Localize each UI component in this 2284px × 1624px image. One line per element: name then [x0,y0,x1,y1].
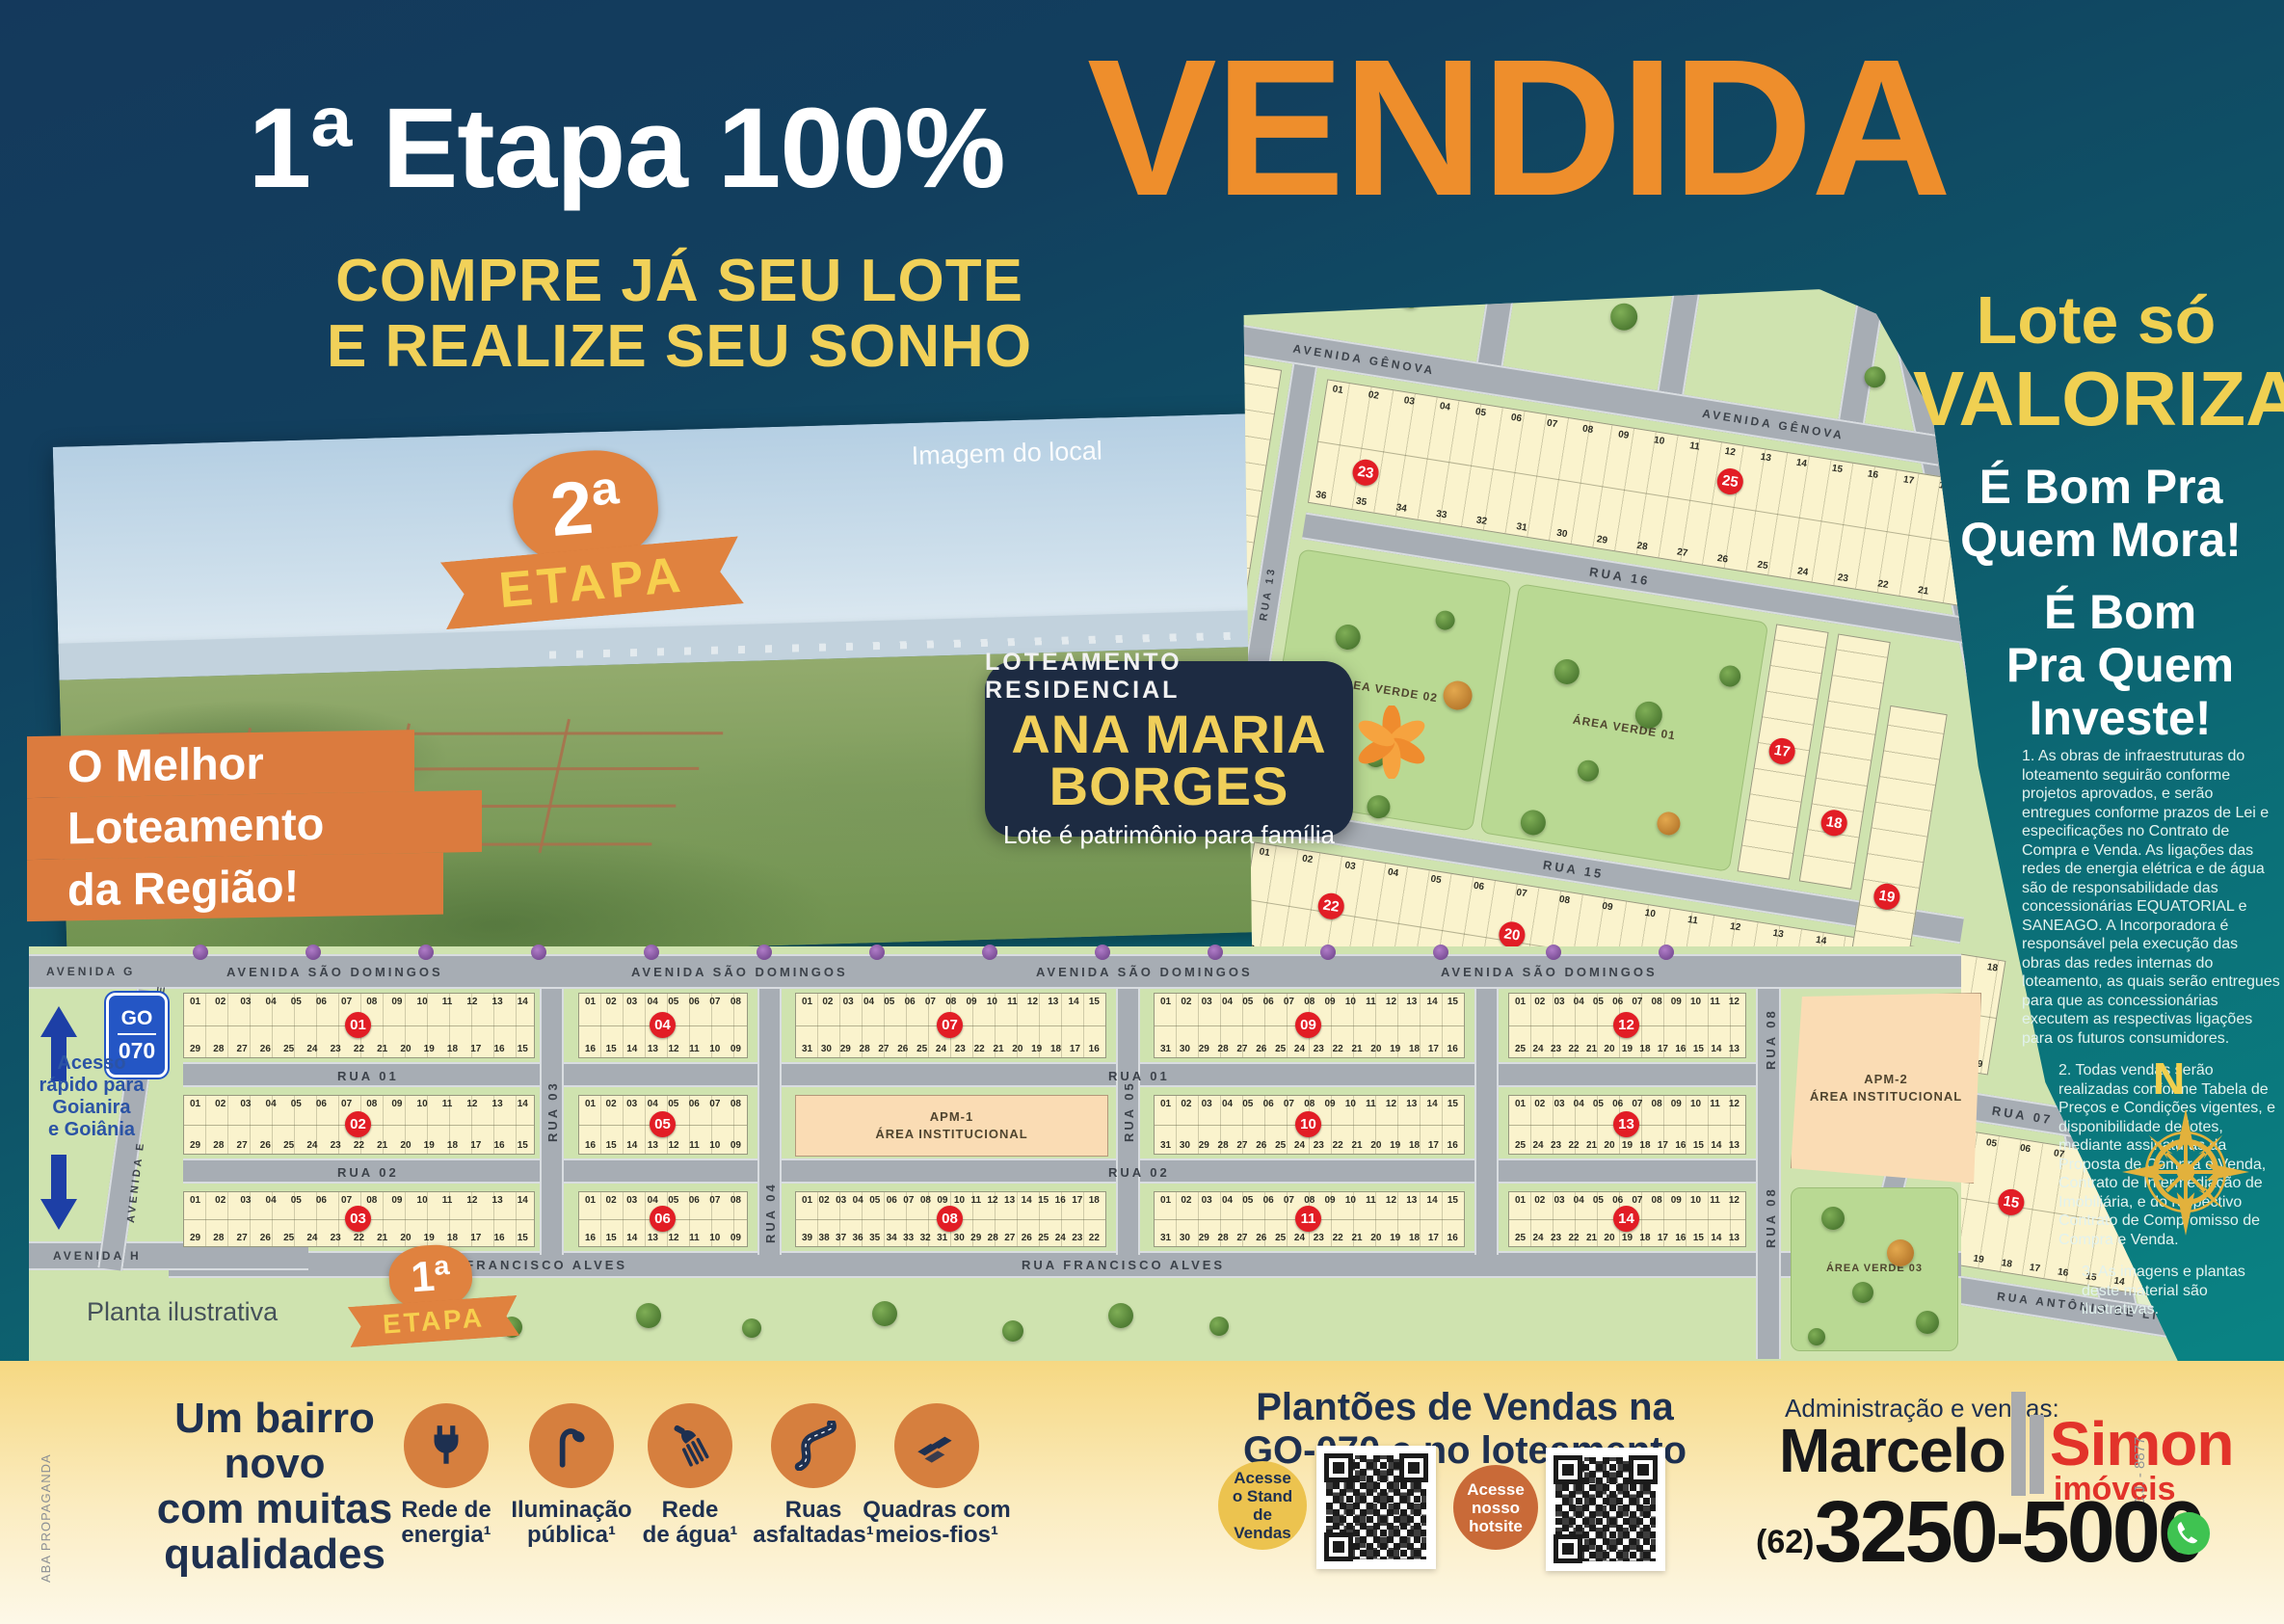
apm2-label: APM-2 ÁREA INSTITUCIONAL [1810,1071,1962,1105]
quadra-marker: 06 [650,1206,676,1232]
access-note: Acesso rápido para Goianira e Goiânia [29,1052,154,1141]
quadra-marker: 07 [937,1012,963,1038]
feature-iluminacao: Iluminação pública¹ [509,1403,634,1548]
lot-numbers-top: 0102030405060708 [585,997,741,1007]
lot-numbers-top: 010203040506070809101112 [1515,1195,1740,1206]
phone-number: (62) 3250-5000 [1756,1492,2203,1573]
qr-code-stand [1316,1446,1436,1569]
lot-numbers-bottom: 31302928272625242322212019181716 [802,1044,1100,1054]
feature-caption: Quadras com meios-fios¹ [863,1498,1010,1548]
headline-cta: COMPRE JÁ SEU LOTE E REALIZE SEU SONHO [275,249,1084,380]
ribbon-line: O Melhor [27,730,414,798]
ribbon-line: Loteamento [27,790,482,860]
tree-icon [1108,1303,1133,1328]
arrow-down-icon [40,1155,77,1230]
street-lamp-icon [529,1403,614,1488]
apm1-area: APM-1 ÁREA INSTITUCIONAL [795,1095,1108,1157]
lot-numbers-top: 0102030405060708 [585,1195,741,1206]
tree-icon [1916,1311,1939,1334]
avenue-tree-icon [1095,945,1110,960]
lot-numbers-bottom: 25242322212019181716151413 [1515,1140,1740,1151]
phone-main: 3250-5000 [1814,1492,2202,1573]
value-line2: VALORIZA [1913,355,2279,443]
legal-notes: 1. As obras de infraestruturas do loteam… [2022,747,2280,1333]
quadra-marker: 08 [937,1206,963,1232]
tree-icon [1808,1328,1825,1345]
lot-numbers-bottom: 31302928272625242322212019181716 [1160,1233,1458,1243]
street-label-sao_domingos: AVENIDA SÃO DOMINGOS [1036,965,1253,979]
avenue-tree-icon [1433,945,1448,960]
feature-energia: Rede de energia¹ [387,1403,505,1548]
lot-numbers-top: 010203040506070809101112131415161718 [802,1195,1100,1206]
road-sign-state: GO [118,1007,157,1035]
lot-numbers-bottom: 25242322212019181716151413 [1515,1233,1740,1243]
tree-icon [872,1301,897,1326]
avenue-tree-icon [531,945,546,960]
lot-numbers-top: 0102030405060708 [585,1099,741,1109]
avenue-tree-icon [193,945,208,960]
street-label-avenida_h: AVENIDA H [53,1249,142,1263]
lot-numbers-bottom: 31302928272625242322212019181716 [1160,1140,1458,1151]
plug-icon [404,1403,489,1488]
street-label-rua03: RUA 03 [545,1080,560,1142]
lot-numbers-top: 010203040506070809101112 [1515,1099,1740,1109]
feature-caption: Rede de água¹ [643,1498,738,1548]
lot-numbers-top: 010203040506070809101112131415 [1160,1099,1458,1109]
lot-numbers-top: 0102030405060708091011121314 [190,997,528,1007]
benefit-investe: É Bom Pra Quem Investe! [1961,586,2279,745]
apm1-label: APM-1 ÁREA INSTITUCIONAL [875,1108,1027,1143]
avenue-tree-icon [869,945,885,960]
street-label-rua05: RUA 05 [1122,1080,1136,1142]
qr-code-hotsite [1546,1448,1665,1571]
legal-note-3: 3. As imagens e plantas deste material s… [2082,1263,2280,1319]
quadra-marker: 05 [650,1111,676,1137]
curb-blocks-icon [894,1403,979,1488]
feature-quadras: Quadras com meios-fios¹ [856,1403,1018,1548]
shower-icon [648,1403,732,1488]
avenue-tree-icon [305,945,321,960]
feature-agua: Rede de água¹ [631,1403,749,1548]
street-road [183,1158,1768,1184]
tree-icon [1209,1317,1229,1336]
quadra-marker: 09 [1295,1012,1321,1038]
feature-caption: Iluminação pública¹ [511,1498,631,1548]
street-label-rua08: RUA 08 [1764,1008,1778,1070]
apm2-area: APM-2 ÁREA INSTITUCIONAL [1791,993,1981,1184]
headline-sold: VENDIDA [1087,15,2003,240]
qr-stand-label: Acesse o Stand de Vendas [1218,1461,1307,1550]
poster: Imagem do local AVENIDA GÊNOVAAVENIDA GÊ… [0,0,2284,1624]
benefit-mora: É Bom Pra Quem Mora! [1927,461,2274,567]
lot-numbers-bottom: 292827262524232221201918171615 [190,1044,528,1054]
lot-numbers-top: 010203040506070809101112131415 [1160,1195,1458,1206]
headline-stage: 1ª Etapa 100% [145,83,1108,214]
agency-credit: ABA PROPAGANDA [39,1428,53,1583]
tree-icon [1002,1320,1023,1342]
footer-band: ABA PROPAGANDA Um bairro novo com muitas… [0,1361,2284,1624]
lot-numbers-bottom: 25242322212019181716151413 [1515,1044,1740,1054]
avenue-tree-icon [418,945,434,960]
tree-icon [1887,1239,1914,1266]
best-subdivision-ribbon: O Melhor Loteamento da Região! [27,729,482,921]
avenue-tree-icon [1546,945,1561,960]
street-label-sao_domingos: AVENIDA SÃO DOMINGOS [631,965,848,979]
street-label-rua02: RUA 02 [1108,1165,1170,1180]
street-road [1474,989,1499,1255]
quadra-marker: 02 [345,1111,371,1137]
quadra-marker: 01 [345,1012,371,1038]
tree-icon [1852,1282,1873,1303]
compass-north-label: N [2153,1052,2185,1105]
quadra-marker: 11 [1295,1206,1321,1232]
lot-numbers-bottom: 1615141312111009 [585,1044,741,1054]
plan-disclaimer: Planta ilustrativa [87,1297,278,1327]
lot-numbers-top: 0102030405060708091011121314 [190,1195,528,1206]
road-icon [771,1403,856,1488]
lot-numbers-bottom: 1615141312111009 [585,1233,741,1243]
whatsapp-icon [2166,1511,2211,1556]
qr-hotsite-label: Acesse nosso hotsite [1453,1465,1538,1550]
street-label-rua08: RUA 08 [1764,1186,1778,1248]
stage2-badge: 2ª ETAPA [432,439,744,629]
lot-numbers-bottom: 31302928272625242322212019181716 [1160,1044,1458,1054]
tree-icon [1821,1207,1845,1230]
street-label-rua04: RUA 04 [763,1182,778,1243]
avenue-tree-icon [1320,945,1336,960]
street-label-rua01: RUA 01 [337,1069,399,1083]
tree-icon [636,1303,661,1328]
project-name: ANA MARIA BORGES [1011,708,1326,812]
street-label-rua01: RUA 01 [1108,1069,1170,1083]
feature-caption: Rede de energia¹ [401,1498,491,1548]
tree-icon [742,1318,761,1338]
flower-icon [1355,706,1428,779]
lot-numbers-top: 010203040506070809101112131415 [1160,997,1458,1007]
avenue-tree-icon [982,945,997,960]
verde3-label: ÁREA VERDE 03 [1826,1262,1923,1276]
stage1-badge: 1ª ETAPA [344,1239,520,1347]
street-label-sao_domingos: AVENIDA SÃO DOMINGOS [226,965,443,979]
project-badge: LOTEAMENTO RESIDENCIAL ANA MARIA BORGES … [985,661,1353,837]
phone-ddd: (62) [1756,1524,1814,1561]
quadra-marker: 03 [345,1206,371,1232]
project-tagline: Lote é patrimônio para família [1003,820,1335,850]
street-label-rua02: RUA 02 [337,1165,399,1180]
ribbon-line: da Região! [27,853,443,922]
project-kicker: LOTEAMENTO RESIDENCIAL [985,649,1353,705]
brand-first: Marcelo [1779,1415,2005,1486]
quadra-marker: 10 [1295,1111,1321,1137]
value-line1: Lote só [1913,281,2279,359]
quadra-marker: 13 [1613,1111,1639,1137]
avenue-tree-icon [644,945,659,960]
street-label-francisco: RUA FRANCISCO ALVES [1022,1258,1225,1272]
compass-rose-icon [2122,1108,2249,1236]
lot-numbers-bottom: 292827262524232221201918171615 [190,1140,528,1151]
lot-numbers-bottom: 393837363534333231302928272625242322 [802,1233,1100,1243]
avenue-tree-icon [1208,945,1223,960]
street-label-avenida_g: AVENIDA G [46,965,135,978]
avenue-tree-icon [1659,945,1674,960]
quadra-marker: 14 [1613,1206,1639,1232]
lot-numbers-top: 0102030405060708091011121314 [190,1099,528,1109]
lot-numbers-bottom: 1615141312111009 [585,1140,741,1151]
quadra-marker: 12 [1613,1012,1639,1038]
street-road [183,1062,1768,1087]
street-label-sao_domingos: AVENIDA SÃO DOMINGOS [1441,965,1658,979]
legal-note-1: 1. As obras de infraestruturas do loteam… [2022,747,2280,1048]
avenue-tree-icon [757,945,772,960]
lot-numbers-top: 010203040506070809101112 [1515,997,1740,1007]
lot-numbers-top: 010203040506070809101112131415 [802,997,1100,1007]
quadra-marker: 04 [650,1012,676,1038]
